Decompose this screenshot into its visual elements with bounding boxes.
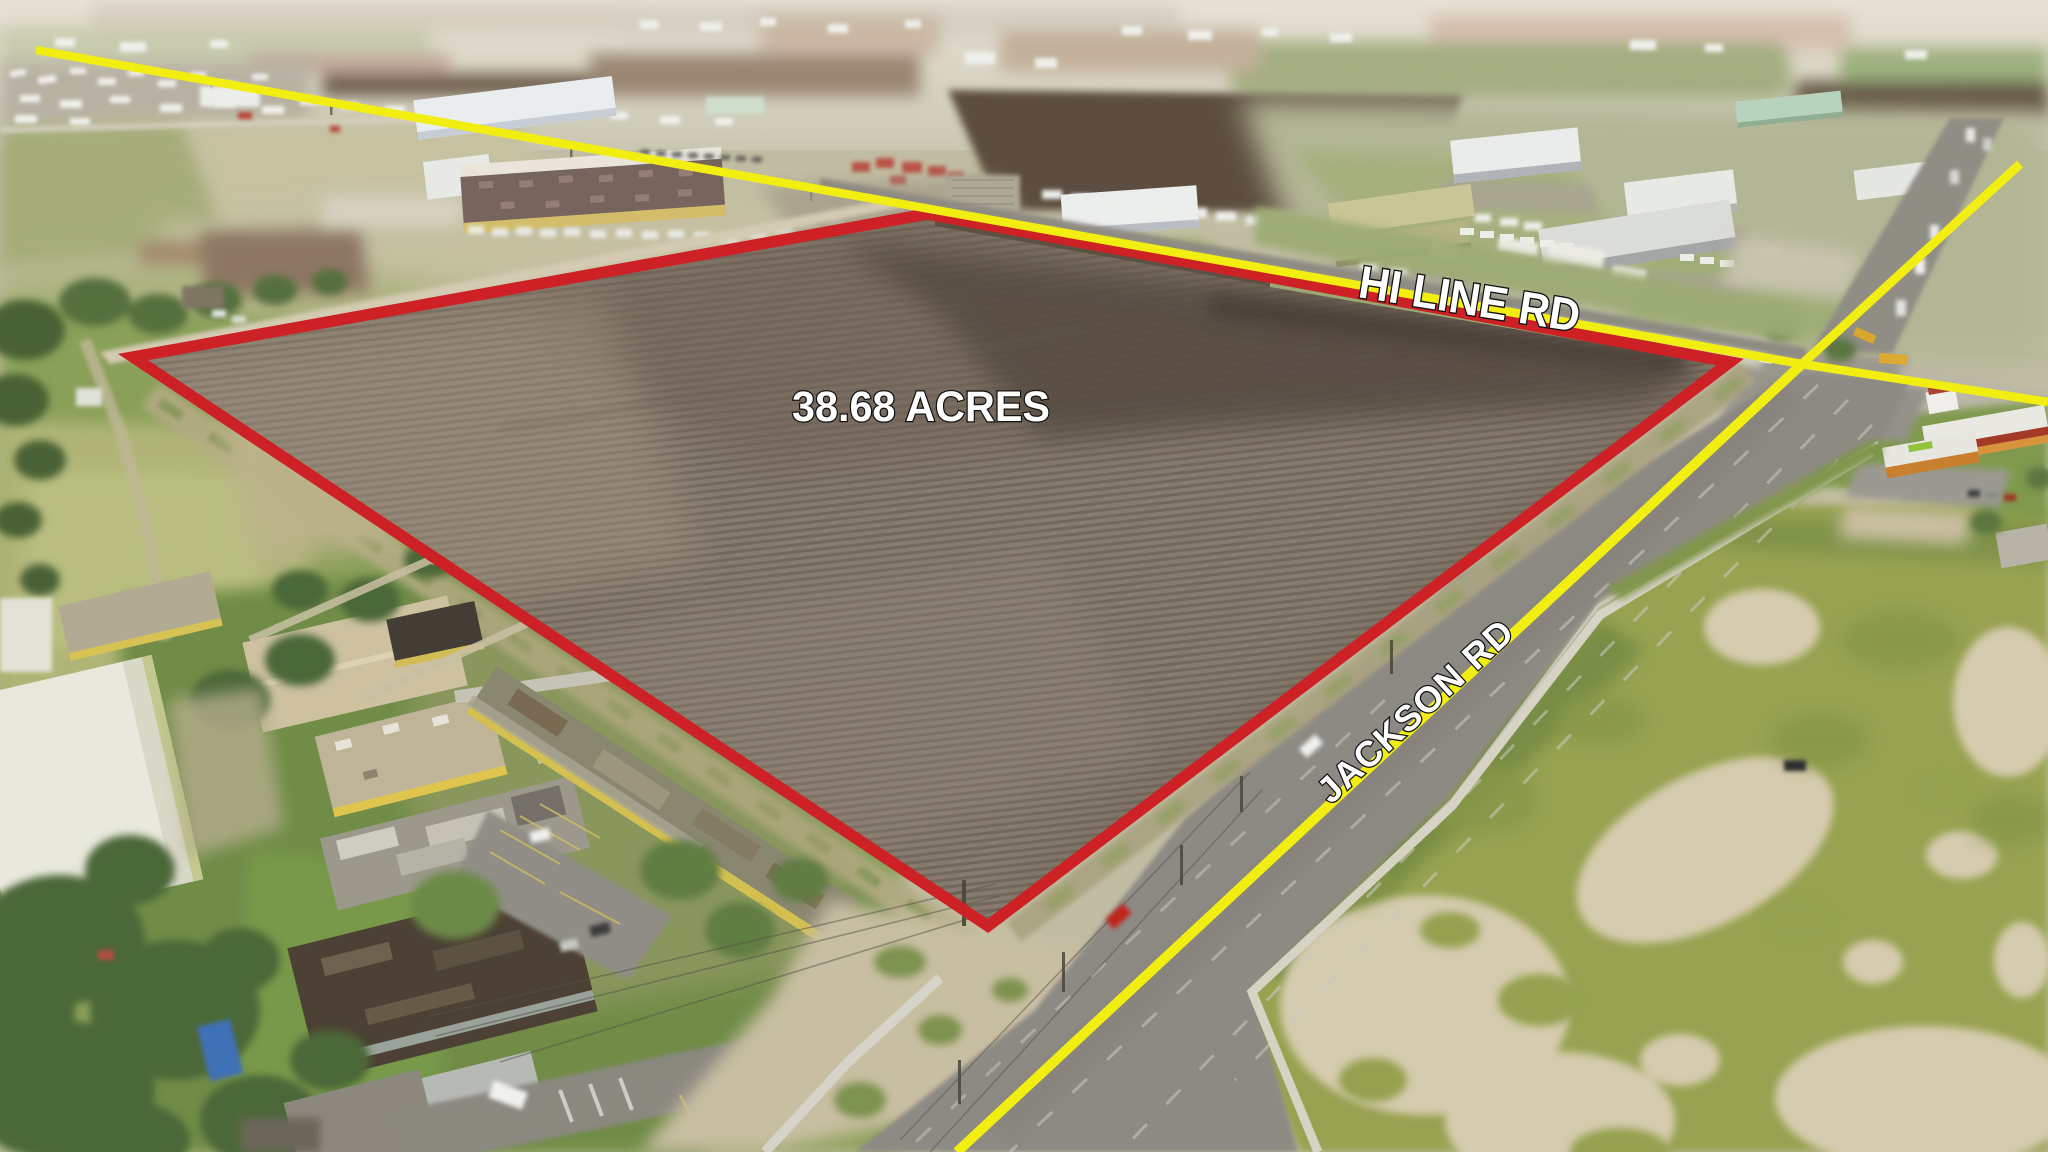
svg-text:38.68 ACRES: 38.68 ACRES [792, 383, 1050, 431]
